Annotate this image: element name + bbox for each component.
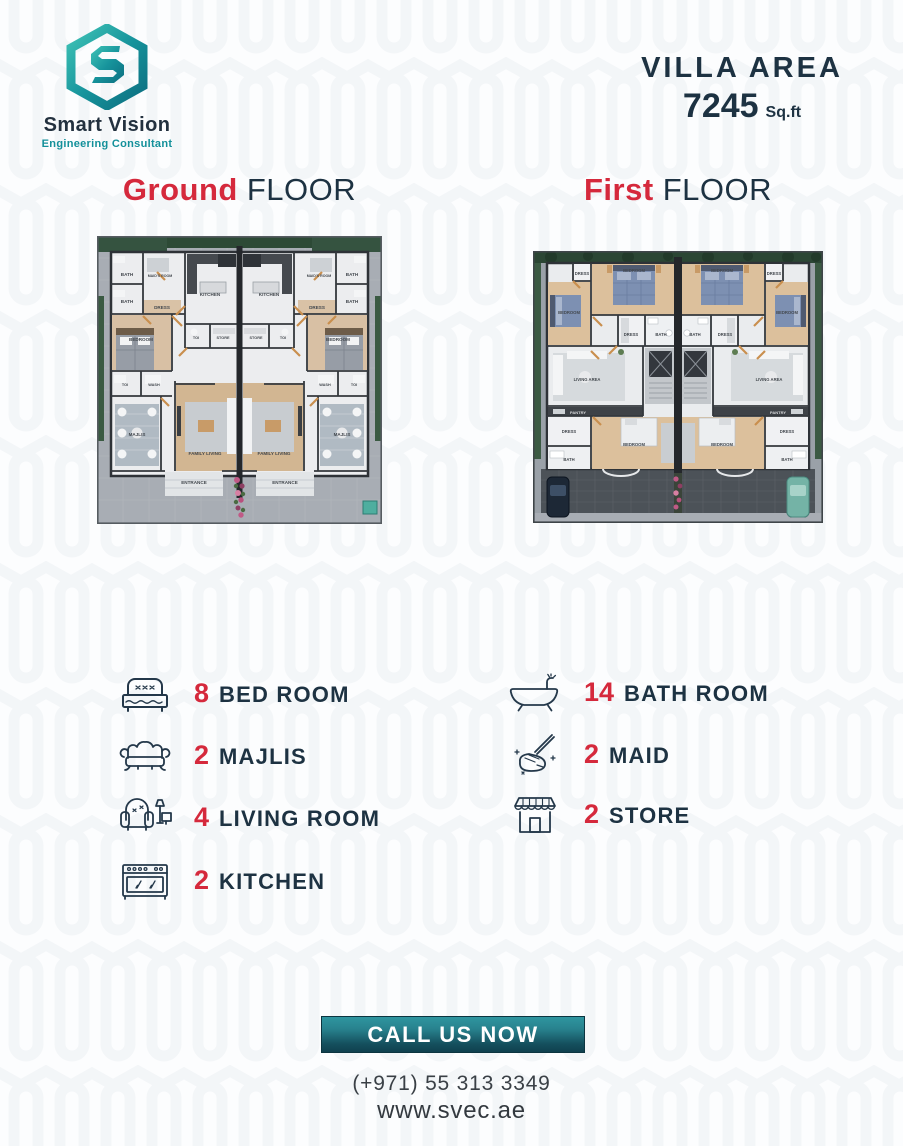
ground-floor-heading-highlight: Ground — [123, 172, 238, 207]
room-label-entrance: ENTRANCE — [272, 480, 298, 485]
room-label-dress: DRESS — [154, 305, 170, 310]
feature-row-majlis: 2MAJLIS — [116, 730, 307, 780]
room-label-bath: BATH — [781, 457, 792, 462]
feature-row-living-room: 4LIVING ROOM — [116, 792, 380, 842]
room-label-toilet: TOI — [193, 336, 199, 340]
room-label-majlis: MAJLIS — [129, 432, 146, 437]
stove-icon — [116, 857, 174, 903]
teal-car — [787, 477, 809, 517]
feature-count: 2 — [194, 740, 209, 771]
room-label-bedroom: BEDROOM — [711, 442, 733, 447]
feature-label: BATH ROOM — [624, 681, 769, 707]
bed-icon — [116, 670, 174, 716]
room-label-pantry: PANTRY — [570, 410, 586, 415]
room-label-living-area: LIVING AREA — [756, 377, 783, 382]
feature-row-kitchen: 2KITCHEN — [116, 855, 325, 905]
ground-floor-heading-rest: FLOOR — [247, 172, 356, 207]
smart-vision-logo-icon — [65, 24, 149, 110]
room-label-bath: BATH — [563, 457, 574, 462]
room-label-bath: BATH — [121, 272, 134, 277]
room-label-dress: DRESS — [718, 332, 733, 337]
room-label-bedroom: BEDROOM — [711, 268, 733, 273]
ground-floor-heading: GroundFLOOR — [97, 172, 382, 214]
room-label-bath: BATH — [346, 299, 359, 304]
sofa-icon — [116, 732, 174, 778]
room-label-living-area: LIVING AREA — [574, 377, 601, 382]
bathtub-icon — [506, 669, 564, 715]
first-floor-plan: DRESS BEDROOM BEDROOM DRESS BATH LIVING … — [533, 251, 823, 523]
room-label-bath: BATH — [655, 332, 666, 337]
first-floor-heading: FirstFLOOR — [533, 172, 823, 214]
room-label-dress: DRESS — [575, 271, 590, 276]
mop-icon — [506, 730, 564, 778]
room-label-bath: BATH — [689, 332, 700, 337]
villa-area-block: VILLA AREA 7245 Sq.ft — [608, 52, 876, 126]
feature-count: 2 — [194, 865, 209, 896]
room-label-bedroom: BEDROOM — [776, 310, 798, 315]
room-label-dress: DRESS — [562, 429, 577, 434]
room-label-bedroom: BEDROOM — [623, 268, 645, 273]
party-wall-divider — [237, 246, 243, 498]
brand-name: Smart Vision — [22, 114, 192, 137]
armchair-lamp-icon — [116, 793, 174, 841]
room-label-bedroom: BEDROOM — [326, 337, 350, 342]
flower-bed — [673, 473, 682, 513]
room-label-dress: DRESS — [780, 429, 795, 434]
feature-label: MAJLIS — [219, 744, 307, 770]
room-label-dress: DRESS — [767, 271, 782, 276]
room-label-pantry: PANTRY — [770, 410, 786, 415]
room-label-bedroom: BEDROOM — [558, 310, 580, 315]
room-label-toilet: TOI — [122, 383, 128, 387]
room-label-toilet: TOI — [351, 383, 357, 387]
ground-floor-plan: BATH MAID'S ROOM BATH DRESS BEDROOM KITC… — [97, 236, 382, 524]
ground-left-half — [111, 252, 240, 496]
room-label-dress: DRESS — [624, 332, 639, 337]
room-label-dress: DRESS — [309, 305, 325, 310]
room-label-kitchen: KITCHEN — [200, 292, 221, 297]
garden-bench — [363, 501, 377, 514]
website-url: www.svec.ae — [0, 1097, 903, 1125]
feature-count: 4 — [194, 802, 209, 833]
flyer-page: Smart Vision Engineering Consultant VILL… — [0, 0, 903, 1146]
room-label-toilet: TOI — [280, 336, 286, 340]
shop-icon — [506, 790, 564, 838]
room-label-store: STORE — [216, 336, 229, 340]
room-label-bedroom: BEDROOM — [623, 442, 645, 447]
feature-count: 8 — [194, 678, 209, 709]
feature-count: 2 — [584, 739, 599, 770]
room-label-entrance: ENTRANCE — [181, 480, 207, 485]
room-label-maids-room: MAID'S ROOM — [148, 274, 173, 278]
feature-label: KITCHEN — [219, 869, 325, 895]
feature-label: STORE — [609, 803, 690, 829]
room-label-maids-room: MAID'S ROOM — [307, 274, 332, 278]
villa-area-unit: Sq.ft — [766, 104, 802, 122]
first-floor-heading-rest: FLOOR — [663, 172, 772, 207]
feature-row-maid: 2MAID — [506, 729, 670, 779]
feature-row-bedroom: 8BED ROOM — [116, 668, 350, 718]
room-label-store: STORE — [249, 336, 262, 340]
feature-row-bathroom: 14BATH ROOM — [506, 667, 769, 717]
call-us-now-button[interactable]: CALL US NOW — [321, 1016, 585, 1053]
room-label-family-living: FAMILY LIVING — [189, 451, 222, 456]
brand-tagline: Engineering Consultant — [22, 138, 192, 150]
feature-count: 14 — [584, 677, 614, 708]
feature-row-store: 2STORE — [506, 789, 690, 839]
phone-number: (+971) 55 313 3349 — [0, 1072, 903, 1096]
room-label-wash: WASH — [148, 383, 160, 387]
villa-area-value: 7245 — [683, 87, 759, 126]
feature-count: 2 — [584, 799, 599, 830]
room-label-wash: WASH — [319, 383, 331, 387]
room-label-bath: BATH — [346, 272, 359, 277]
room-label-family-living: FAMILY LIVING — [258, 451, 291, 456]
first-floor-heading-highlight: First — [584, 172, 654, 207]
feature-label: MAID — [609, 743, 670, 769]
room-label-bedroom: BEDROOM — [129, 337, 153, 342]
brand-logo: Smart Vision Engineering Consultant — [22, 24, 192, 150]
villa-area-label: VILLA AREA — [608, 52, 876, 85]
room-label-bath: BATH — [121, 299, 134, 304]
room-label-kitchen: KITCHEN — [259, 292, 280, 297]
feature-label: BED ROOM — [219, 682, 350, 708]
room-label-majlis: MAJLIS — [334, 432, 351, 437]
feature-label: LIVING ROOM — [219, 806, 380, 832]
